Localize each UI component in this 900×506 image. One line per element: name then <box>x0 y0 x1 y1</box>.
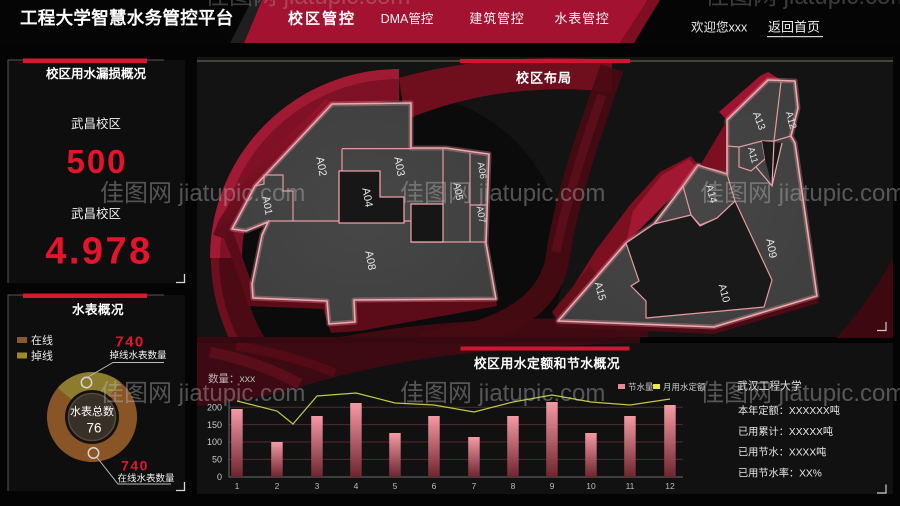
svg-text:10: 10 <box>586 481 596 491</box>
svg-text:9: 9 <box>550 481 555 491</box>
svg-text:佳图网 jiatupic.com: 佳图网 jiatupic.com <box>205 0 410 10</box>
svg-text:节水量: 节水量 <box>628 382 654 392</box>
svg-text:500: 500 <box>66 143 127 180</box>
svg-text:工程大学智慧水务管控平台: 工程大学智慧水务管控平台 <box>20 8 234 28</box>
svg-text:返回首页: 返回首页 <box>768 20 820 35</box>
svg-text:校区用水漏损概况: 校区用水漏损概况 <box>46 66 147 81</box>
svg-text:武昌校区: 武昌校区 <box>71 206 121 221</box>
svg-text:150: 150 <box>207 420 222 430</box>
svg-text:12: 12 <box>665 481 675 491</box>
svg-text:建筑管控: 建筑管控 <box>469 11 524 26</box>
svg-text:已用累计：XXXXX吨: 已用累计：XXXXX吨 <box>738 425 833 438</box>
svg-text:在线: 在线 <box>31 333 53 347</box>
svg-text:佳图网 jiatupic.com: 佳图网 jiatupic.com <box>400 180 605 207</box>
svg-text:2: 2 <box>275 481 280 491</box>
svg-text:0: 0 <box>217 472 222 482</box>
svg-text:100: 100 <box>207 437 222 447</box>
svg-text:50: 50 <box>212 455 222 465</box>
svg-text:校区布局: 校区布局 <box>516 71 572 86</box>
svg-text:已用节水率：XX%: 已用节水率：XX% <box>738 467 822 480</box>
svg-text:740: 740 <box>121 458 149 474</box>
svg-text:DMA管控: DMA管控 <box>381 11 434 26</box>
svg-text:已用节水：XXXX吨: 已用节水：XXXX吨 <box>738 446 826 459</box>
svg-text:校区管控: 校区管控 <box>288 10 356 28</box>
svg-text:佳图网 jiatupic.com: 佳图网 jiatupic.com <box>700 180 900 207</box>
svg-text:校区用水定额和节水概况: 校区用水定额和节水概况 <box>474 356 620 371</box>
svg-text:7: 7 <box>472 481 477 491</box>
svg-text:佳图网 jiatupic.com: 佳图网 jiatupic.com <box>400 380 605 407</box>
svg-text:水表概况: 水表概况 <box>72 302 124 317</box>
svg-text:佳图网 jiatupic.com: 佳图网 jiatupic.com <box>705 0 900 10</box>
svg-text:740: 740 <box>115 334 145 351</box>
svg-text:在线水表数量: 在线水表数量 <box>117 473 175 485</box>
svg-text:3: 3 <box>315 481 320 491</box>
svg-text:1: 1 <box>235 481 240 491</box>
svg-text:佳图网 jiatupic.com: 佳图网 jiatupic.com <box>700 380 900 407</box>
svg-text:武昌校区: 武昌校区 <box>71 116 121 131</box>
svg-text:5: 5 <box>393 481 398 491</box>
svg-text:掉线水表数量: 掉线水表数量 <box>109 350 167 362</box>
svg-text:76: 76 <box>86 421 101 436</box>
svg-text:4: 4 <box>354 481 359 491</box>
svg-text:11: 11 <box>626 481 635 491</box>
svg-text:8: 8 <box>511 481 516 491</box>
svg-text:欢迎您xxx: 欢迎您xxx <box>691 20 748 35</box>
svg-text:佳图网 jiatupic.com: 佳图网 jiatupic.com <box>100 180 305 207</box>
svg-text:4.978: 4.978 <box>45 231 153 273</box>
svg-text:掉线: 掉线 <box>31 349 53 363</box>
svg-text:水表管控: 水表管控 <box>554 11 609 26</box>
svg-text:6: 6 <box>432 481 437 491</box>
svg-text:佳图网 jiatupic.com: 佳图网 jiatupic.com <box>100 380 305 407</box>
